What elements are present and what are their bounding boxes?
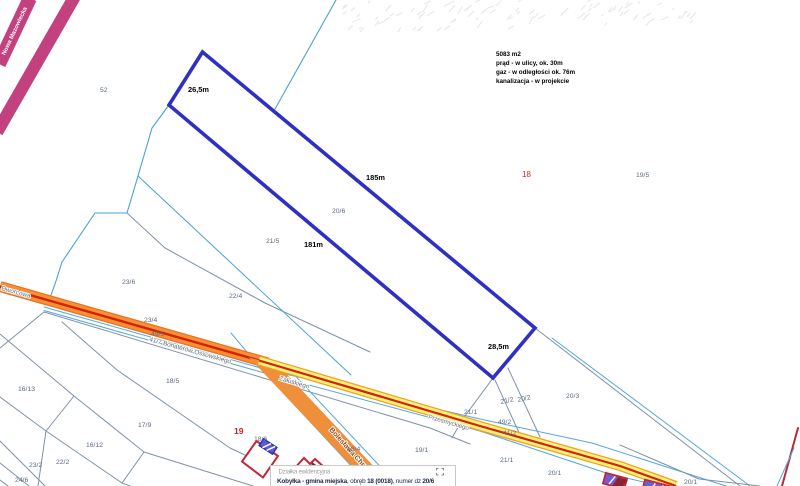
svg-text:18/4: 18/4 — [347, 446, 360, 453]
svg-text:23/6: 23/6 — [122, 279, 135, 286]
svg-text:22/4: 22/4 — [229, 293, 242, 300]
svg-text:prąd - w ulicy, ok. 30m: prąd - w ulicy, ok. 30m — [496, 60, 563, 67]
svg-text:41/2: 41/2 — [503, 430, 516, 437]
svg-text:18/6: 18/6 — [254, 436, 267, 443]
svg-text:20/1: 20/1 — [684, 479, 697, 486]
svg-text:19: 19 — [234, 426, 244, 436]
svg-text:20/3: 20/3 — [566, 393, 579, 400]
svg-text:21/5: 21/5 — [266, 238, 279, 245]
svg-text:19/1: 19/1 — [415, 447, 428, 454]
svg-text:52: 52 — [100, 87, 108, 94]
svg-text:16/12: 16/12 — [86, 442, 103, 449]
svg-text:185m: 185m — [366, 173, 385, 182]
svg-text:21/1: 21/1 — [464, 409, 477, 416]
svg-text:gaz - w odległości ok. 76m: gaz - w odległości ok. 76m — [496, 69, 575, 76]
svg-text:Kobyłka - gmina miejska, obręb: Kobyłka - gmina miejska, obręb 18 (0018)… — [277, 478, 435, 485]
svg-text:18/5: 18/5 — [166, 378, 179, 385]
svg-text:21/1: 21/1 — [500, 457, 513, 464]
svg-text:49/5: 49/5 — [151, 331, 164, 338]
svg-text:Działka ewidencyjna: Działka ewidencyjna — [279, 470, 331, 476]
svg-text:19/5: 19/5 — [636, 172, 649, 179]
svg-text:18: 18 — [522, 170, 531, 179]
svg-text:20/6: 20/6 — [332, 208, 345, 215]
svg-text:28,5m: 28,5m — [488, 342, 509, 351]
svg-text:20/1: 20/1 — [548, 470, 561, 477]
svg-text:24/6: 24/6 — [15, 477, 28, 484]
svg-text:22/2: 22/2 — [56, 459, 69, 466]
svg-text:49/2: 49/2 — [498, 419, 511, 426]
svg-text:23/2: 23/2 — [29, 462, 42, 469]
svg-text:181m: 181m — [304, 240, 323, 249]
svg-text:17/9: 17/9 — [138, 422, 151, 429]
svg-text:kanalizacja - w projekcie: kanalizacja - w projekcie — [496, 78, 570, 85]
svg-text:26,5m: 26,5m — [188, 85, 209, 94]
svg-text:5083 m2: 5083 m2 — [496, 51, 521, 58]
svg-text:23/4: 23/4 — [144, 317, 157, 324]
svg-text:16/13: 16/13 — [18, 386, 35, 393]
